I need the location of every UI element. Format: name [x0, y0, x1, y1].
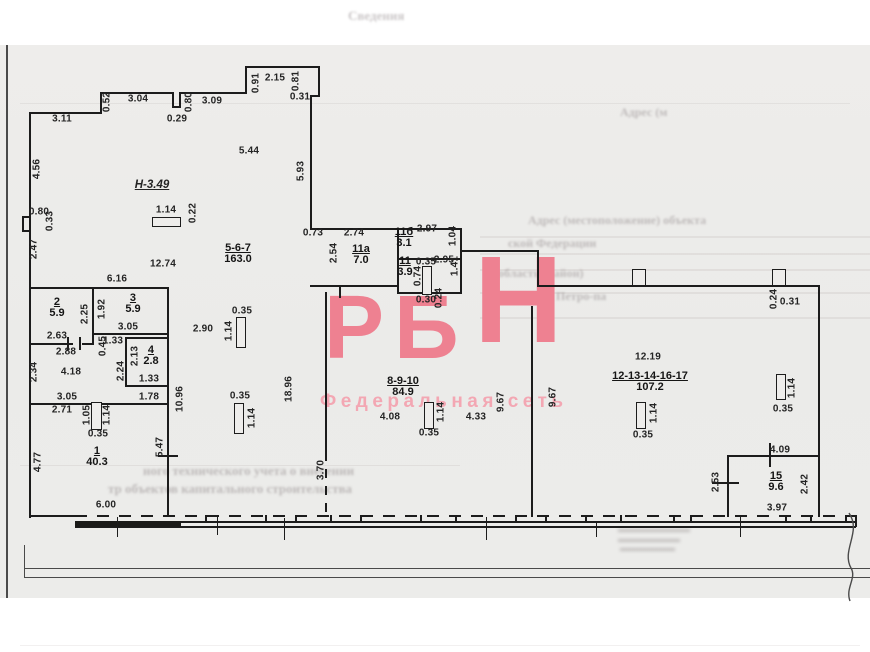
column-shaft [632, 269, 646, 286]
dimension-label: 2.34 [29, 362, 40, 382]
balcony-slab-fill [75, 521, 181, 527]
room-area: 9.6 [768, 482, 783, 493]
dimension-label: 2.53 [711, 472, 722, 492]
dimension-tick [330, 515, 332, 522]
dimension-label: 1.14 [787, 378, 798, 398]
room-area: 3.1 [395, 238, 413, 249]
wall-segment [75, 526, 856, 528]
dimension-label: 0.52 [102, 92, 113, 112]
wall-segment [310, 95, 312, 230]
column-shaft [234, 403, 244, 434]
dimension-label: 12.19 [635, 352, 661, 363]
dimension-label: 0.80 [184, 92, 195, 112]
dimension-tick [79, 337, 81, 350]
dimension-label: 0.29 [167, 114, 187, 125]
dimension-tick [205, 515, 207, 522]
wall-segment [537, 250, 539, 287]
dimension-label: 0.35 [230, 391, 250, 402]
dimension-label: 10.96 [175, 386, 186, 412]
dimension-label: 2.90 [193, 324, 213, 335]
dimension-label: 0.24 [434, 288, 445, 308]
dimension-label: 4.09 [770, 445, 790, 456]
dimension-label: 1.78 [139, 392, 159, 403]
room-area: 3.9 [397, 267, 412, 278]
wall-segment [22, 230, 30, 232]
dimension-label: 0.31 [290, 92, 310, 103]
dimension-label: 2.25 [80, 304, 91, 324]
dimension-label: 6.00 [96, 500, 116, 511]
column-shaft [776, 374, 786, 400]
wall-segment [22, 216, 24, 231]
dimension-label: 1.04 [448, 226, 459, 246]
dimension-label: 9.67 [496, 392, 507, 412]
dimension-label: 3.11 [52, 114, 72, 125]
dimension-label: 0.31 [780, 297, 800, 308]
dimension-label: 0.45 [98, 336, 109, 356]
dimension-label: 1.14 [102, 405, 113, 425]
dimension-label: 3.04 [128, 94, 148, 105]
dimension-label: 4.18 [61, 367, 81, 378]
dimension-label: 1.14 [224, 321, 235, 341]
dimension-tick [810, 515, 812, 522]
dimension-label: 0.73 [303, 228, 323, 239]
dimension-label: 0.35 [773, 404, 793, 415]
dimension-label: 5.44 [239, 146, 259, 157]
bleedthrough-text: Сведения [348, 8, 404, 24]
dimension-label: 0.24 [769, 289, 780, 309]
column-shaft [772, 269, 786, 286]
dimension-label: 0.35 [633, 430, 653, 441]
wall-segment [125, 337, 169, 339]
dimension-label: 1.33 [139, 374, 159, 385]
document-border-line [24, 545, 25, 578]
dimension-label: 2.42 [800, 474, 811, 494]
dimension-label: 3.70 [316, 460, 327, 480]
dimension-tick [620, 515, 622, 522]
wall-segment [245, 66, 247, 94]
dimension-label: 2.74 [344, 228, 364, 239]
dimension-tick [217, 515, 218, 535]
column-shaft [91, 402, 102, 430]
room-label: 159.6 [768, 471, 783, 493]
room-label: 5-6-7163.0 [224, 243, 252, 265]
document-border-line [24, 568, 870, 569]
dimension-tick [596, 521, 597, 537]
wall-segment [531, 306, 533, 517]
dimension-tick [585, 515, 587, 522]
room-label: 25.9 [49, 297, 64, 319]
dimension-label: 4.56 [32, 159, 43, 179]
dimension-tick [515, 515, 517, 522]
watermark-letter: Р [324, 283, 384, 373]
wall-segment [310, 285, 399, 287]
bleedthrough-smudge [618, 529, 690, 532]
wall-segment [75, 521, 856, 523]
dimension-label: 2.47 [29, 239, 40, 259]
dimension-label: 0.22 [188, 203, 199, 223]
dimension-tick [545, 515, 547, 522]
wall-segment [125, 385, 169, 387]
room-area: 163.0 [224, 254, 252, 265]
dimension-tick [360, 515, 362, 522]
dimension-label: 3.05 [57, 392, 77, 403]
dimension-label: 2.24 [116, 361, 127, 381]
dimension-label: 1.14 [649, 403, 660, 423]
room-label: 42.8 [143, 345, 158, 367]
wall-segment [179, 92, 181, 108]
dimension-label: 2.13 [130, 346, 141, 366]
dimension-label: 0.33 [45, 211, 56, 231]
dimension-label: 18.96 [284, 376, 295, 402]
dimension-tick [740, 517, 741, 537]
bleedthrough-text: тр объектов капитального строительства [108, 481, 352, 497]
bleedthrough-text: Адрес (м [620, 105, 667, 120]
wall-segment [92, 287, 94, 345]
dimension-label: 0.35 [419, 428, 439, 439]
room-label: 140.3 [86, 446, 107, 468]
dimension-label: 4.33 [466, 412, 486, 423]
dimension-label: 6.16 [107, 274, 127, 285]
dimension-tick [284, 518, 285, 540]
room-area: 84.9 [387, 387, 419, 398]
dimension-label: 2.63 [47, 331, 67, 342]
dimension-label: 3.05 [118, 322, 138, 333]
column-shaft [424, 402, 434, 429]
dimension-label: 0.74 [413, 266, 424, 286]
room-area: 40.3 [86, 457, 107, 468]
dimension-tick [295, 515, 297, 522]
dimension-label: 2.88 [56, 347, 76, 358]
bleedthrough-text: Адрес (местоположение) объекта [528, 213, 706, 228]
document-border-line [6, 45, 8, 598]
room-area: 5.9 [49, 308, 64, 319]
dimension-label: 4.08 [380, 412, 400, 423]
dimension-label: 4.77 [33, 452, 44, 472]
wall-segment [29, 287, 169, 289]
dimension-label: 1.14 [156, 205, 176, 216]
dimension-tick [785, 515, 787, 522]
dimension-label: 5.47 [155, 437, 166, 457]
dimension-label: 2.15 [265, 73, 285, 84]
dimension-label: 0.91 [251, 73, 262, 93]
room-label: 113.9 [397, 256, 412, 278]
dimension-label: 1.05 [82, 405, 93, 425]
dashed-wall-segment [75, 515, 856, 517]
dimension-tick [673, 515, 675, 522]
dimension-tick [117, 517, 118, 537]
column-shaft [236, 317, 246, 348]
column-shaft [636, 402, 646, 429]
room-label: 12-13-14-16-17107.2 [612, 371, 688, 393]
dimension-tick [420, 515, 422, 522]
wall-segment [82, 343, 94, 345]
dimension-label: 1.14 [247, 408, 258, 428]
room-label: 35.9 [125, 293, 140, 315]
dimension-label: 1.14 [436, 402, 447, 422]
dimension-tick [265, 515, 267, 522]
scan-artifact-line [20, 645, 860, 646]
dimension-label: 1.92 [97, 299, 108, 319]
bleedthrough-smudge [618, 539, 680, 542]
room-label: 11б3.1 [395, 227, 413, 249]
dimension-label: 9.67 [548, 387, 559, 407]
column-shaft [422, 266, 432, 295]
wall-segment [167, 287, 169, 517]
dimension-label: 2.54 [329, 243, 340, 263]
dimension-tick [339, 286, 341, 298]
bleedthrough-text: Петро-па [556, 289, 606, 304]
wall-segment [310, 228, 462, 230]
wall-segment [818, 285, 820, 517]
dimension-label: 3.09 [202, 96, 222, 107]
wall-segment [29, 515, 76, 517]
room-label: 11а7.0 [352, 244, 370, 266]
wall-segment [325, 292, 327, 452]
dimension-tick [455, 515, 457, 522]
dimension-label: 0.35 [232, 306, 252, 317]
room-area: 107.2 [612, 382, 688, 393]
watermark-letter: Н [474, 239, 563, 362]
dimension-label: 1.41 [450, 256, 461, 276]
dimension-label: 5.93 [296, 161, 307, 181]
wall-segment [460, 250, 539, 252]
dimension-label: 2.71 [52, 405, 72, 416]
bleedthrough-smudge [620, 548, 675, 551]
dimension-tick [690, 515, 692, 522]
dimension-label: 0.35 [88, 429, 108, 440]
wall-segment [245, 66, 320, 68]
dimension-label: 12.74 [150, 259, 176, 270]
dimension-label: 3.97 [767, 503, 787, 514]
scan-crease-line [840, 510, 866, 604]
dimension-label: 2.97 [417, 224, 437, 235]
dimension-tick [486, 517, 487, 540]
scanned-document-page: СведенияАдрес (мАдрес (местоположение) о… [0, 0, 870, 652]
wall-segment [727, 455, 729, 517]
room-area: 2.8 [143, 356, 158, 367]
ceiling-height-note: Н-3.49 [135, 179, 170, 191]
wall-segment [318, 66, 320, 97]
room-label: 8-9-1084.9 [387, 376, 419, 398]
document-border-line [24, 577, 870, 578]
column-shaft [152, 217, 181, 227]
room-area: 7.0 [352, 255, 370, 266]
room-area: 5.9 [125, 304, 140, 315]
dimension-label: 0.81 [291, 71, 302, 91]
